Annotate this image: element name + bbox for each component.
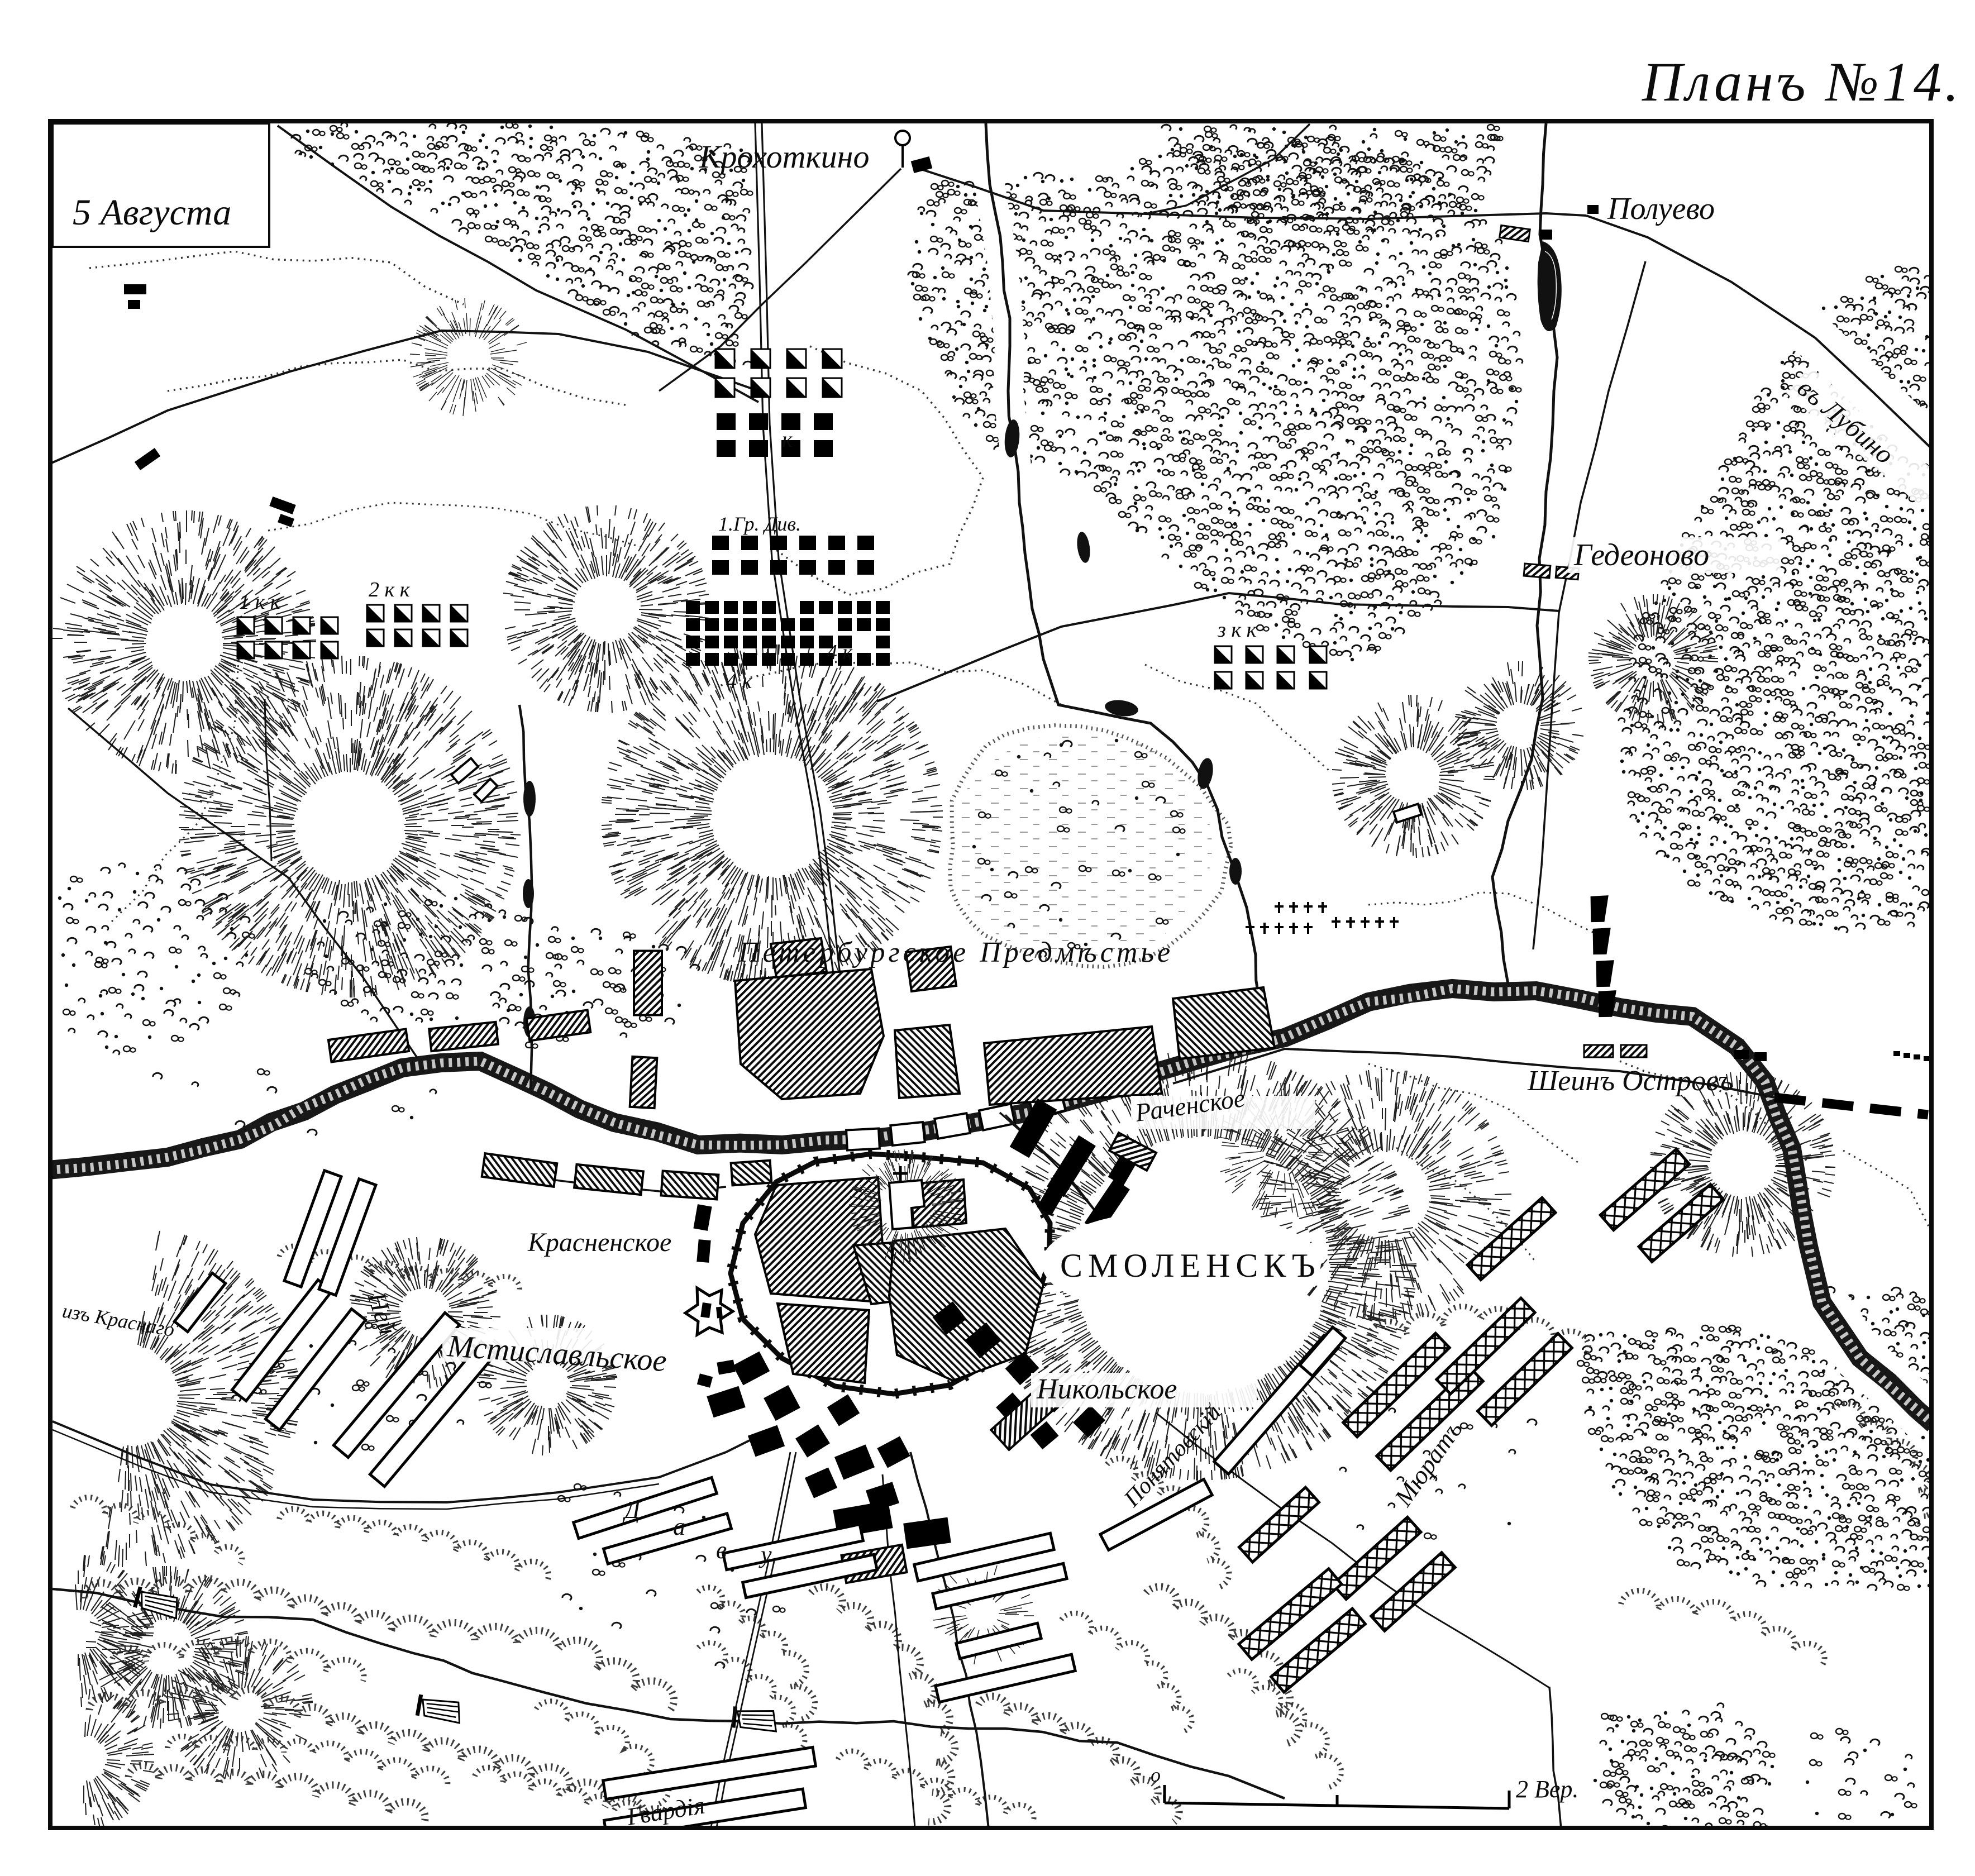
svg-text:Д: Д xyxy=(622,1496,641,1524)
svg-text:Полуево: Полуево xyxy=(1607,192,1715,226)
svg-text:4 к: 4 к xyxy=(726,670,753,693)
svg-text:5 Августа: 5 Августа xyxy=(73,192,231,233)
svg-text:Планъ №14.: Планъ №14. xyxy=(1642,51,1962,113)
svg-text:в: в xyxy=(716,1536,727,1564)
svg-text:2 Вер.: 2 Вер. xyxy=(1516,1775,1578,1803)
svg-text:Гедеоново: Гедеоново xyxy=(1573,538,1709,572)
svg-text:Никольское: Никольское xyxy=(1036,1373,1177,1405)
svg-text:у: у xyxy=(758,1541,772,1568)
svg-text:СМОЛЕНСКЪ: СМОЛЕНСКЪ xyxy=(1060,1247,1321,1284)
svg-text:1 к к: 1 к к xyxy=(239,590,281,614)
svg-text:Шеинъ Островъ: Шеинъ Островъ xyxy=(1527,1065,1733,1097)
svg-text:Крохоткино: Крохоткино xyxy=(699,139,869,175)
svg-text:а: а xyxy=(673,1513,685,1540)
svg-text:к: к xyxy=(782,427,793,452)
svg-text:4 к: 4 к xyxy=(827,641,853,664)
svg-text:Петербургское Предмѣстье: Петербургское Предмѣстье xyxy=(738,937,1173,968)
svg-text:о: о xyxy=(1151,1764,1161,1786)
svg-text:1.Гр. Див.: 1.Гр. Див. xyxy=(718,513,801,535)
svg-text:Красненское: Красненское xyxy=(527,1228,671,1257)
svg-text:з к к: з к к xyxy=(1217,618,1257,642)
svg-text:2 к к: 2 к к xyxy=(369,578,411,602)
